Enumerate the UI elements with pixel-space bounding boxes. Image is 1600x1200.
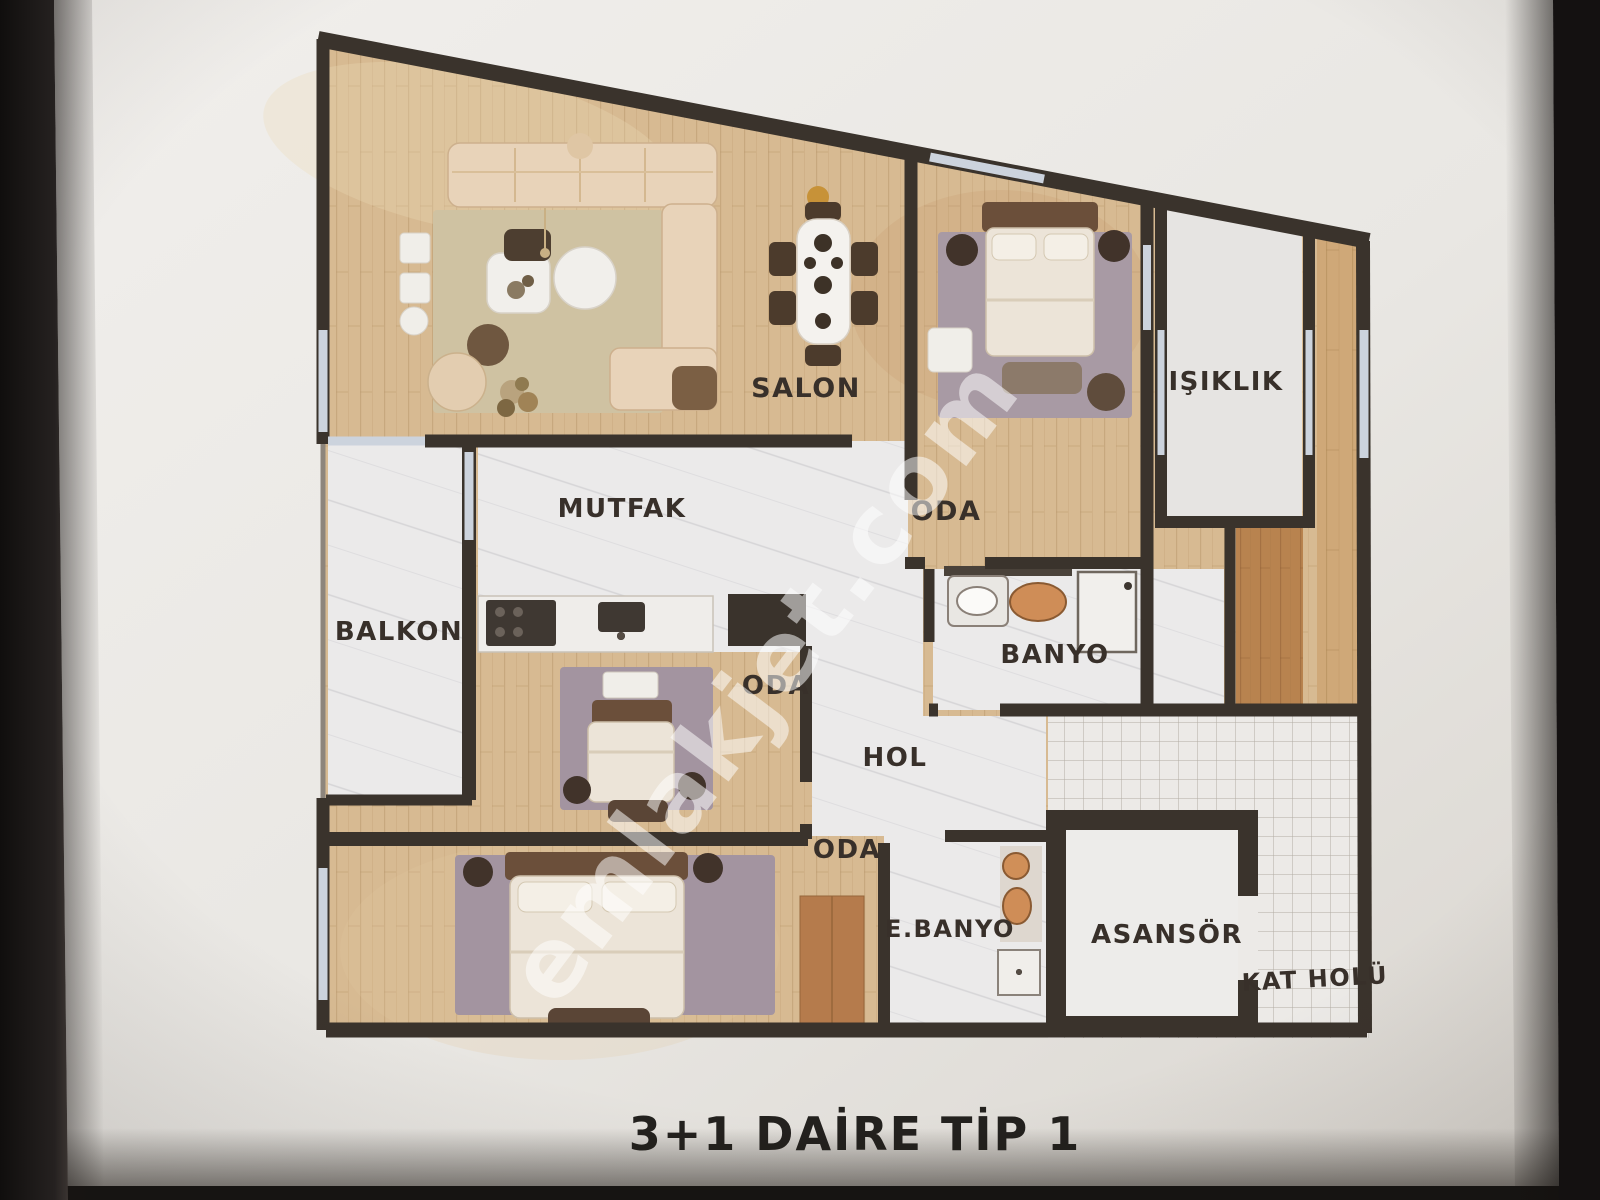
floor-plan-photo: SALON MUTFAK BALKON ODA ODA ODA HOL BANY… [0,0,1600,1200]
photo-bottom-edge [0,1186,1600,1200]
vignette [0,0,1600,1200]
photo-right-band [1553,0,1600,1200]
floor-plan-canvas: SALON MUTFAK BALKON ODA ODA ODA HOL BANY… [0,0,1600,1200]
